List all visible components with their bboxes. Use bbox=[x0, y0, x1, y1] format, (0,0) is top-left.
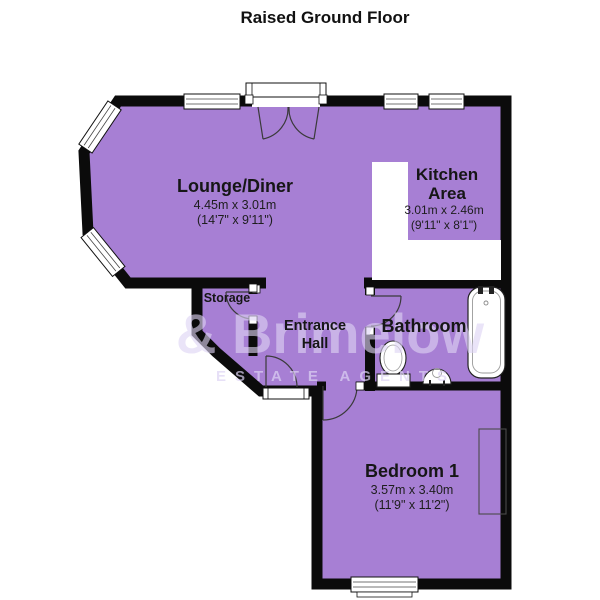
room-dim-bedroom-ft: (11'9" x 11'2") bbox=[374, 498, 449, 512]
room-dim-lounge-m: 4.45m x 3.01m bbox=[194, 198, 277, 212]
room-label-bedroom: Bedroom 1 bbox=[365, 461, 459, 481]
watermark: & Brimelow ESTATE AGENTS bbox=[176, 302, 484, 385]
room-label-lounge: Lounge/Diner bbox=[177, 176, 293, 196]
window bbox=[184, 94, 240, 109]
watermark-subtext: ESTATE AGENTS bbox=[216, 368, 456, 385]
room-label-bathroom: Bathroom bbox=[382, 316, 467, 336]
floor-plan: Raised Ground Floor bbox=[0, 0, 600, 600]
window bbox=[384, 94, 418, 109]
room-dim-bedroom-m: 3.57m x 3.40m bbox=[371, 483, 454, 497]
porch-step bbox=[246, 83, 326, 97]
floor-plan-page: Raised Ground Floor bbox=[0, 0, 600, 600]
room-dim-kitchen-m: 3.01m x 2.46m bbox=[404, 203, 483, 217]
window bbox=[429, 94, 464, 109]
room-dim-lounge-ft: (14'7" x 9'11") bbox=[197, 213, 273, 227]
room-label-hall: Entrance bbox=[284, 318, 346, 334]
entrance-threshold bbox=[263, 388, 309, 399]
room-dim-kitchen-ft: (9'11" x 8'1") bbox=[411, 218, 477, 232]
window bbox=[351, 577, 418, 597]
room-label-hall-2: Hall bbox=[302, 336, 329, 352]
room-label-kitchen: Kitchen bbox=[416, 165, 478, 184]
room-label-storage: Storage bbox=[204, 291, 251, 305]
page-title: Raised Ground Floor bbox=[240, 8, 409, 27]
room-label-kitchen-2: Area bbox=[428, 184, 466, 203]
